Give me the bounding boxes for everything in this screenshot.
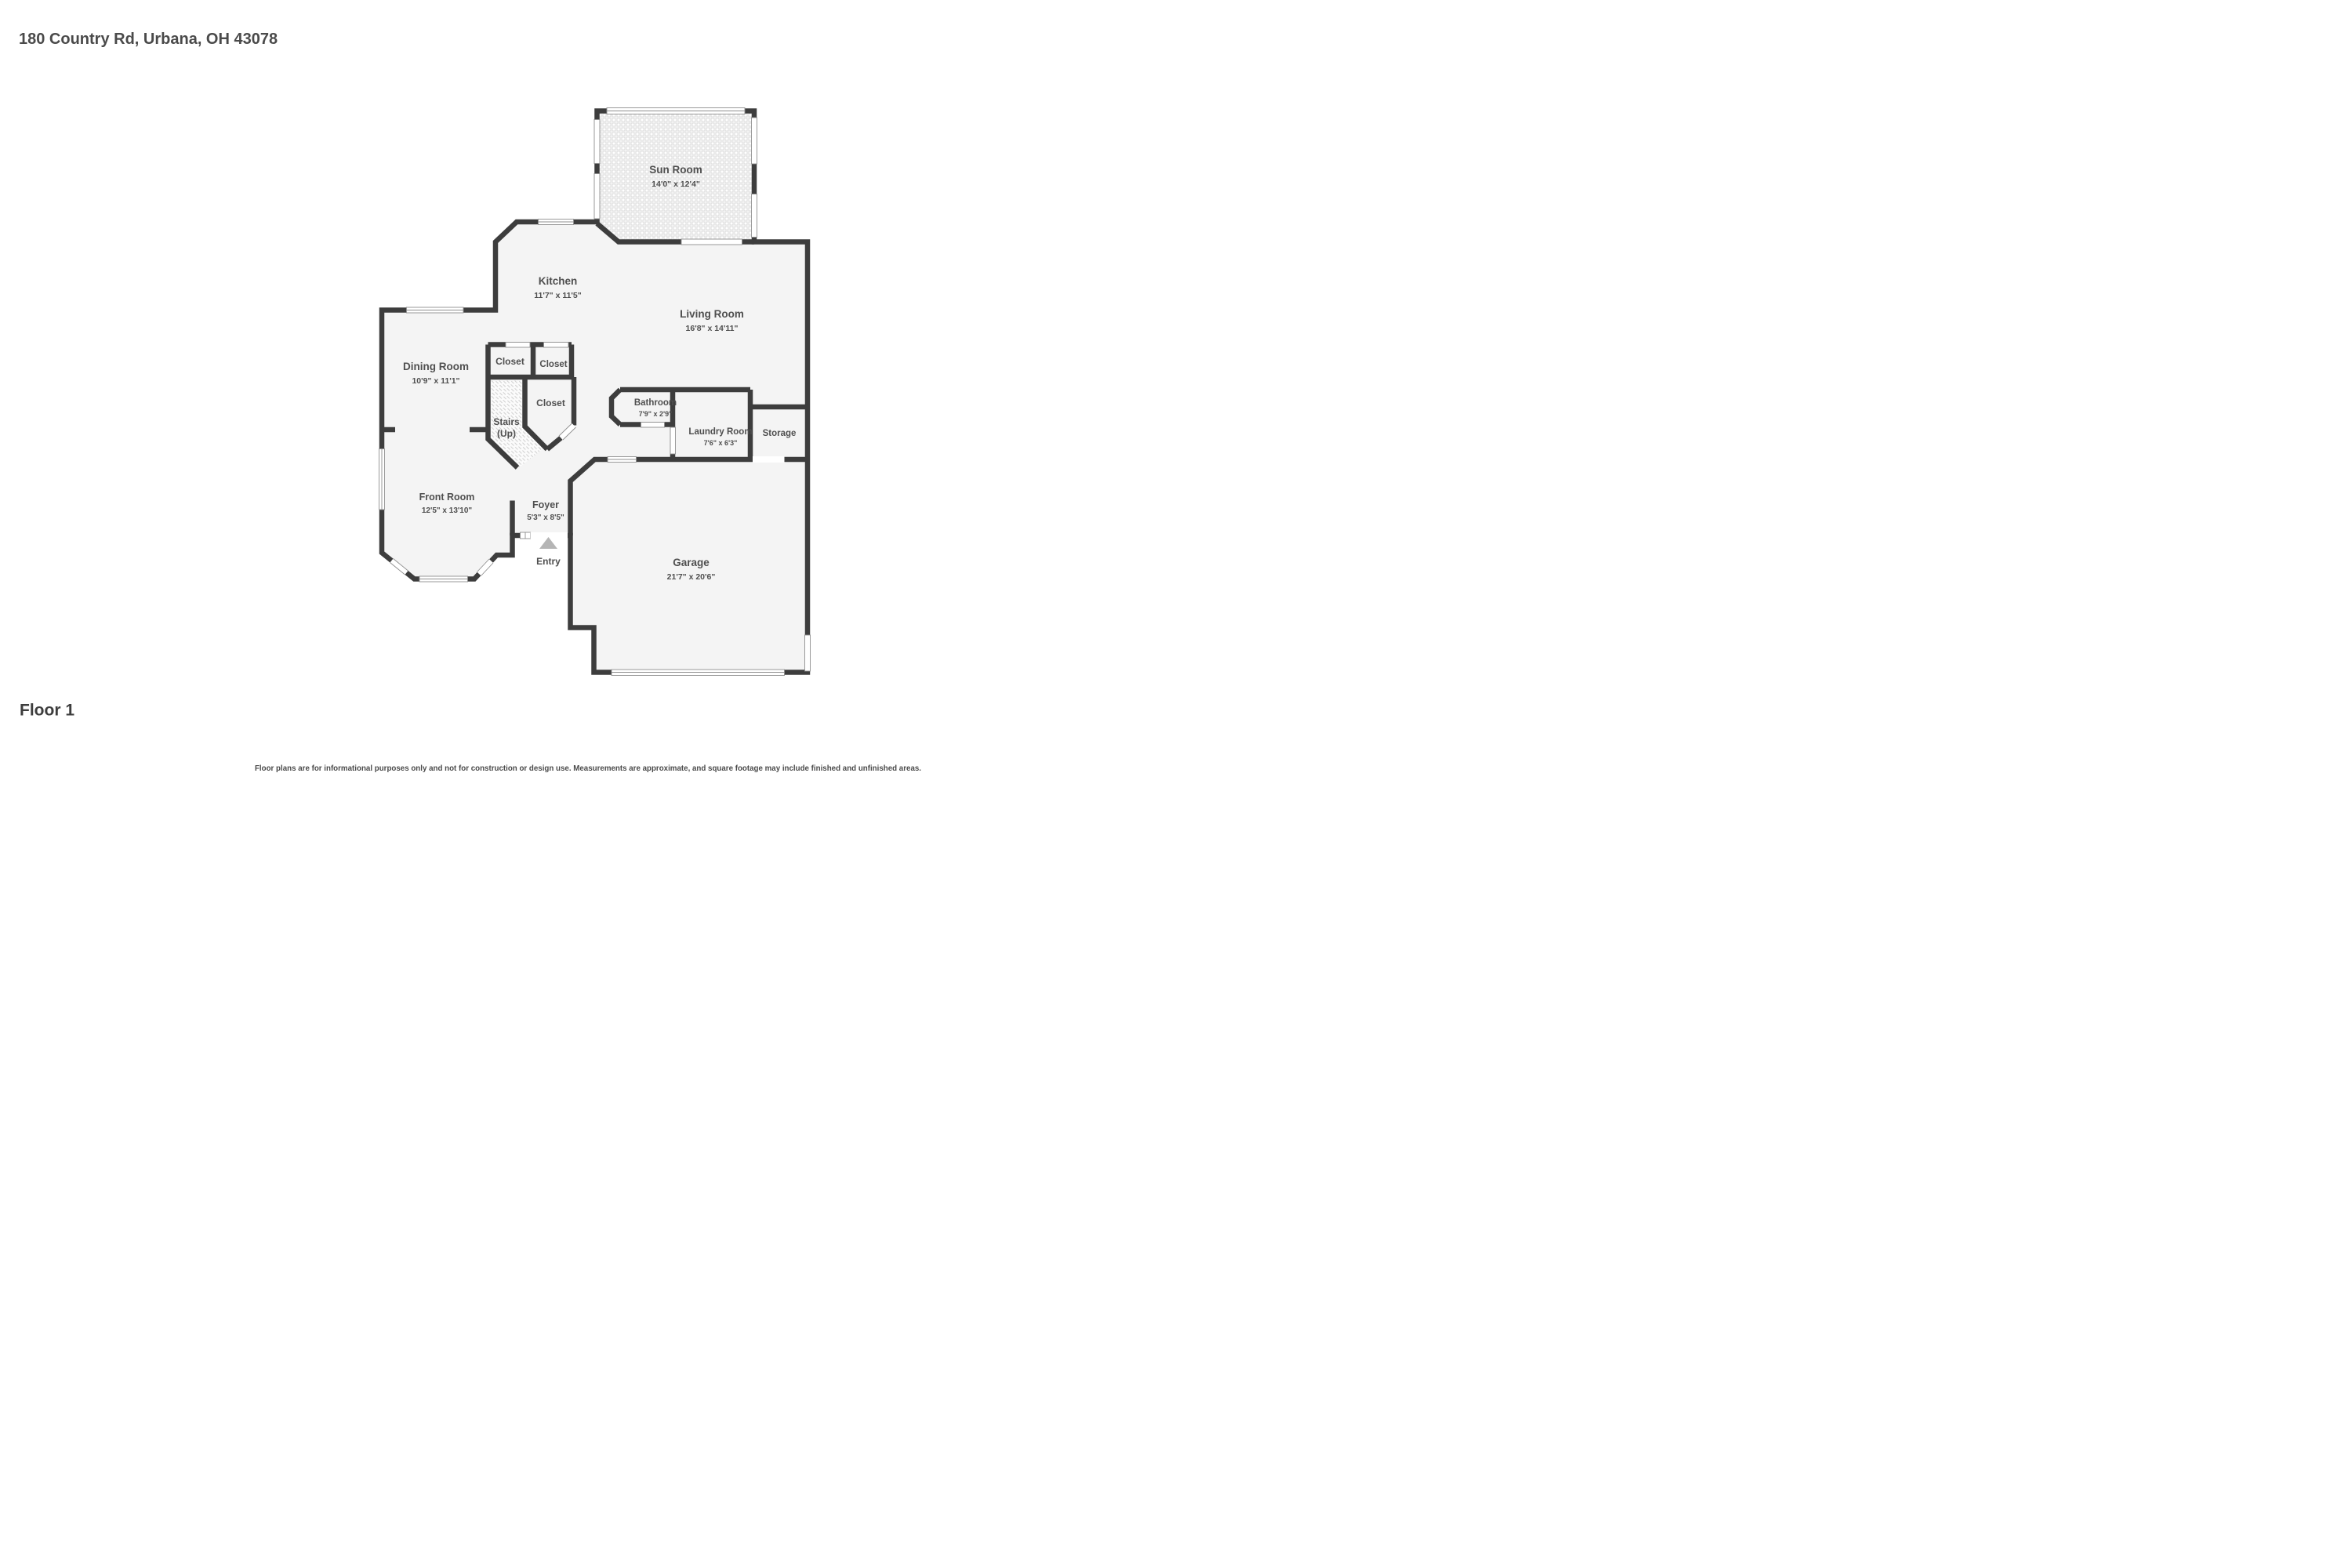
room-name: Garage bbox=[673, 557, 710, 568]
room-dims: 14'0" x 12'4" bbox=[652, 180, 700, 189]
floor-plan-page: 180 Country Rd, Urbana, OH 43078 Floor 1… bbox=[0, 0, 1176, 784]
room-closet-top-left: Closet bbox=[495, 356, 524, 367]
room-name: Kitchen bbox=[539, 275, 578, 287]
sun-room-left-window-2 bbox=[594, 174, 600, 220]
entry-label: Entry bbox=[536, 556, 561, 567]
room-name: Laundry Room bbox=[688, 427, 752, 437]
room-dims: 12'5" x 13'10" bbox=[422, 506, 473, 515]
room-closet-lower: Closet bbox=[536, 397, 565, 408]
room-dims: 5'3" x 8'5" bbox=[527, 514, 564, 522]
room-dims: 7'9" x 2'9" bbox=[639, 410, 673, 418]
room-name: Sun Room bbox=[649, 164, 702, 176]
floor-plan-canvas: 180 Country Rd, Urbana, OH 43078 Floor 1… bbox=[0, 0, 1176, 784]
sun-room-slider-window bbox=[681, 239, 742, 245]
room-dims: 16'8" x 14'11" bbox=[686, 324, 739, 333]
room-dims: 21'7" x 20'6" bbox=[667, 572, 716, 582]
room-name: Living Room bbox=[680, 308, 744, 320]
disclaimer-text: Floor plans are for informational purpos… bbox=[255, 764, 921, 773]
room-name: Front Room bbox=[419, 492, 475, 503]
room-name: Foyer bbox=[532, 499, 559, 510]
bathroom-door bbox=[641, 423, 665, 428]
entry-arrow-icon bbox=[539, 537, 557, 549]
room-dims: 10'9" x 11'1" bbox=[412, 376, 459, 386]
page-title: 180 Country Rd, Urbana, OH 43078 bbox=[19, 31, 278, 48]
closet-left-door bbox=[506, 343, 530, 348]
laundry-door bbox=[670, 427, 676, 454]
floor-label: Floor 1 bbox=[20, 702, 74, 720]
closet-right-door bbox=[544, 343, 569, 348]
room-name: Closet bbox=[495, 356, 524, 367]
sun-room-right-window-2 bbox=[752, 194, 757, 238]
room-name: Closet bbox=[539, 360, 567, 369]
room-name: Bathroom bbox=[634, 398, 677, 408]
room-closet-top-right: Closet bbox=[539, 360, 567, 369]
room-name: Stairs bbox=[493, 416, 520, 427]
sun-room-floor bbox=[600, 114, 753, 240]
garage-right-window bbox=[805, 635, 811, 671]
room-dims: 7'6" x 6'3" bbox=[704, 439, 738, 447]
room-dims: (Up) bbox=[497, 428, 516, 439]
storage-door-gap bbox=[753, 456, 785, 463]
entry-door-opening bbox=[531, 532, 568, 539]
room-name: Dining Room bbox=[403, 361, 469, 372]
room-name: Storage bbox=[763, 429, 797, 438]
room-dims: 11'7" x 11'5" bbox=[534, 291, 582, 300]
sun-room-right-window-1 bbox=[752, 118, 757, 164]
room-storage: Storage bbox=[763, 429, 797, 438]
room-name: Closet bbox=[536, 397, 565, 408]
sun-room-left-window-1 bbox=[594, 120, 600, 164]
